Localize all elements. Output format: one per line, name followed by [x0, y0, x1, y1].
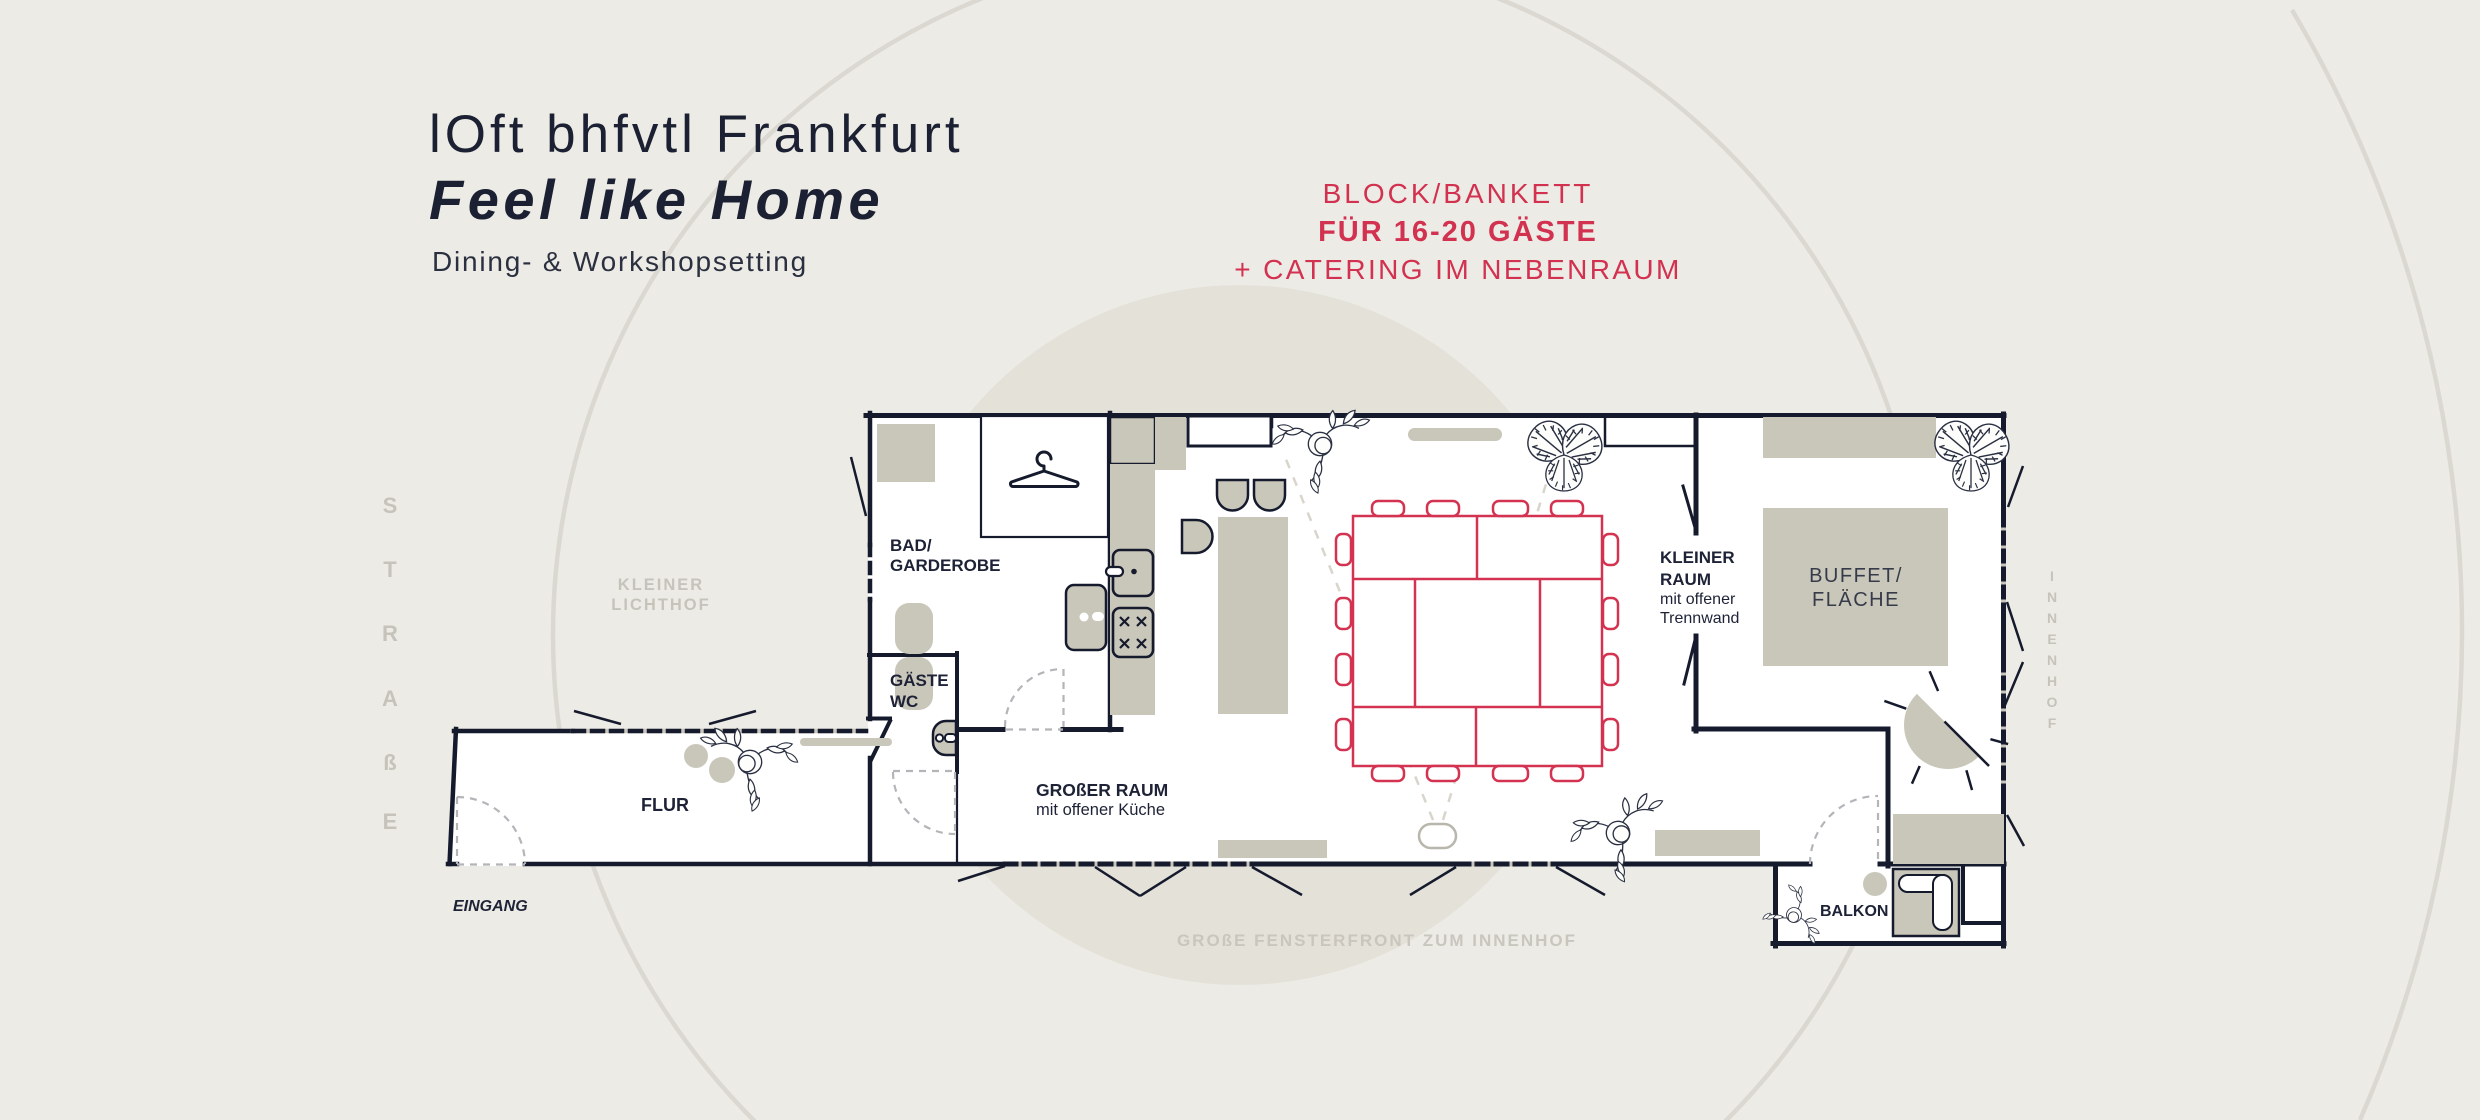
svg-text:WC: WC	[890, 692, 918, 711]
svg-text:mit offener: mit offener	[1660, 591, 1736, 608]
svg-text:mit offener Küche: mit offener Küche	[1036, 801, 1165, 819]
svg-text:BAD/: BAD/	[890, 536, 932, 555]
svg-text:lOft bhfvtl Frankfurt: lOft bhfvtl Frankfurt	[429, 105, 964, 164]
svg-text:FLUR: FLUR	[641, 795, 689, 815]
svg-text:N: N	[2047, 652, 2057, 668]
svg-text:GROßER RAUM: GROßER RAUM	[1036, 780, 1168, 800]
svg-text:GARDEROBE: GARDEROBE	[890, 556, 1001, 575]
svg-text:E: E	[2047, 631, 2056, 647]
svg-text:Feel like Home: Feel like Home	[429, 168, 884, 231]
svg-text:ß: ß	[383, 750, 396, 775]
svg-text:N: N	[2047, 589, 2057, 605]
svg-text:KLEINER: KLEINER	[618, 576, 704, 594]
svg-text:E: E	[383, 809, 398, 834]
svg-text:N: N	[2047, 610, 2057, 626]
svg-text:FÜR 16-20 GÄSTE: FÜR 16-20 GÄSTE	[1318, 215, 1598, 248]
svg-text:A: A	[382, 686, 398, 711]
svg-text:S: S	[383, 493, 398, 518]
svg-text:H: H	[2047, 673, 2057, 689]
svg-text:O: O	[2047, 694, 2058, 710]
svg-text:+ CATERING IM NEBENRAUM: + CATERING IM NEBENRAUM	[1234, 254, 1682, 285]
svg-text:BALKON: BALKON	[1820, 903, 1888, 920]
svg-text:Dining- & Workshopsetting: Dining- & Workshopsetting	[432, 246, 808, 277]
svg-text:FLÄCHE: FLÄCHE	[1812, 589, 1900, 611]
svg-text:RAUM: RAUM	[1660, 570, 1711, 589]
svg-text:GROßE FENSTERFRONT ZUM INNENHO: GROßE FENSTERFRONT ZUM INNENHOF	[1177, 931, 1577, 950]
svg-text:GÄSTE: GÄSTE	[890, 671, 949, 690]
svg-text:KLEINER: KLEINER	[1660, 548, 1735, 567]
svg-text:Trennwand: Trennwand	[1660, 610, 1739, 627]
svg-text:R: R	[382, 621, 398, 646]
svg-text:I: I	[2050, 568, 2054, 584]
svg-text:BLOCK/BANKETT: BLOCK/BANKETT	[1323, 178, 1594, 209]
svg-text:EINGANG: EINGANG	[453, 898, 528, 915]
svg-text:LICHTHOF: LICHTHOF	[611, 596, 710, 614]
svg-text:F: F	[2048, 715, 2057, 731]
svg-text:T: T	[383, 557, 397, 582]
svg-text:BUFFET/: BUFFET/	[1809, 565, 1903, 587]
